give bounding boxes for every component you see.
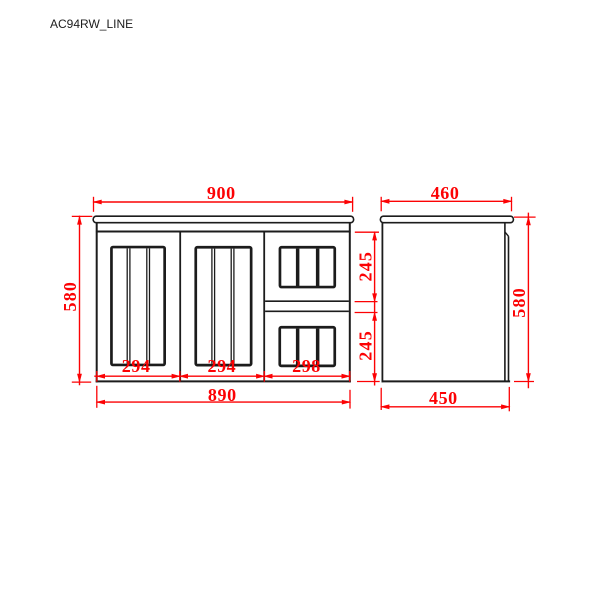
svg-text:900: 900 (207, 183, 236, 203)
svg-text:245: 245 (356, 330, 376, 361)
svg-text:890: 890 (208, 385, 237, 405)
svg-text:294: 294 (207, 356, 236, 376)
svg-text:580: 580 (509, 287, 529, 318)
svg-text:298: 298 (292, 356, 321, 376)
svg-text:245: 245 (356, 251, 376, 282)
svg-text:450: 450 (429, 388, 458, 408)
svg-text:294: 294 (122, 356, 151, 376)
svg-text:AC94RW_LINE: AC94RW_LINE (50, 17, 133, 31)
svg-text:580: 580 (60, 281, 80, 312)
svg-text:460: 460 (431, 183, 460, 203)
